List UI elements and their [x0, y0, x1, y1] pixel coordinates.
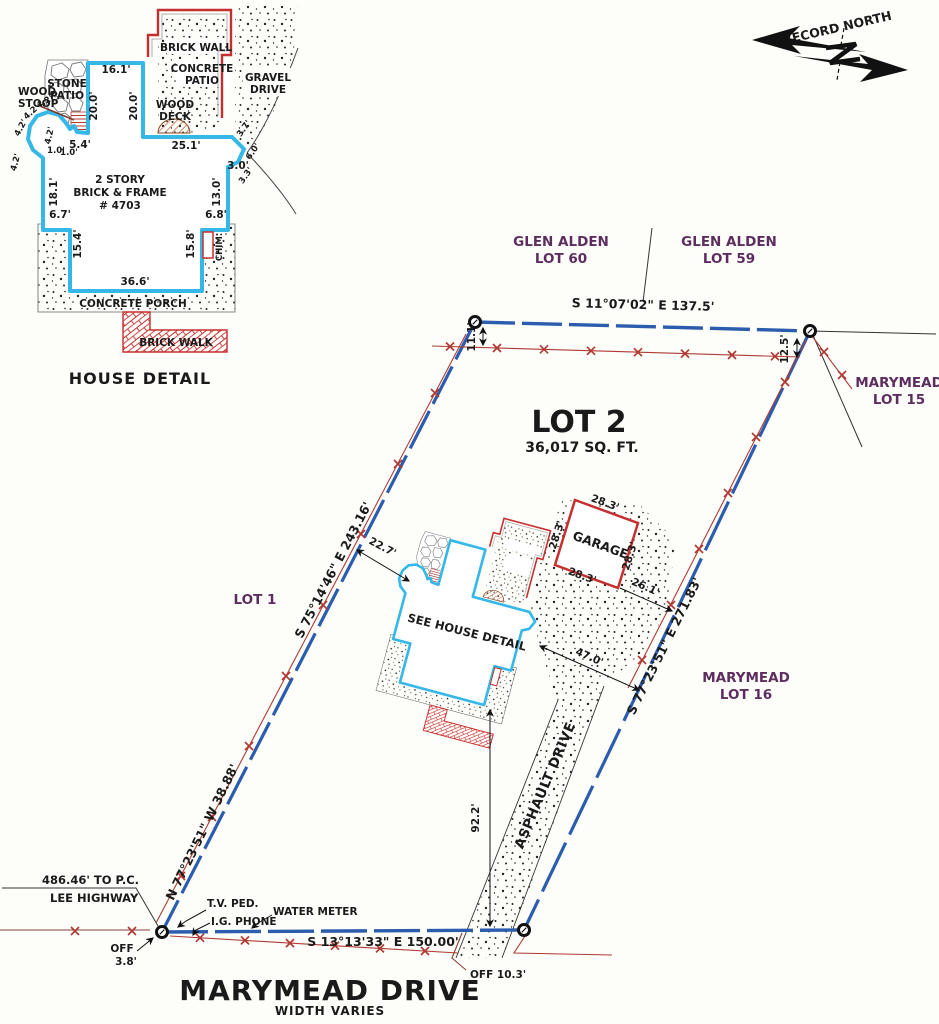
off-3-8-word: OFF	[110, 943, 133, 955]
fence-northeast-diagonal	[812, 336, 852, 389]
dim-12-5: 12.5'	[779, 334, 791, 363]
dim-20-0-left: 20.0'	[88, 91, 100, 120]
wood-deck-label-1: WOOD	[156, 99, 194, 111]
to-pc-label: 486.46' TO P.C.	[42, 873, 139, 887]
brick-walk-label: BRICK WALK	[139, 337, 213, 349]
off-3-8-value: 3.8'	[115, 956, 137, 968]
survey-plat-sheet: BRICK WALL CONCRETE PATIO GRAVEL DRIVE S…	[0, 0, 939, 1024]
boundary-north	[475, 322, 810, 331]
glen-alden-60-number: LOT 60	[535, 251, 587, 267]
monument-southeast	[519, 925, 530, 936]
house-story-label: 2 STORY	[95, 174, 145, 186]
house-number-label: # 4703	[99, 200, 141, 212]
fence-north	[432, 346, 800, 357]
lee-highway-label: LEE HIGHWAY	[50, 891, 139, 905]
chimney-label: CHIM.	[215, 233, 225, 261]
marymead-15-number: LOT 15	[873, 392, 925, 408]
marymead-15-label: MARYMEAD	[855, 375, 939, 391]
plat-drawing: BRICK WALL CONCRETE PATIO GRAVEL DRIVE S…	[0, 0, 939, 1024]
dim-15-4: 15.4'	[72, 229, 84, 258]
dim-92-2: 92.2'	[470, 803, 482, 832]
bearing-west-2: N 77°23'51" W 38.88'	[162, 762, 241, 903]
street-width-note: WIDTH VARIES	[275, 1004, 385, 1018]
dim-25-1: 25.1'	[171, 140, 200, 152]
fence-southeast	[514, 936, 612, 955]
north-arrow: RECORD NORTH	[752, 8, 908, 82]
lot-2-title: LOT 2	[531, 405, 626, 440]
fence-east	[628, 340, 806, 688]
dim-6-7: 6.7'	[49, 209, 71, 221]
house-detail-section: BRICK WALL CONCRETE PATIO GRAVEL DRIVE S…	[9, 6, 298, 388]
glen-alden-60-label: GLEN ALDEN	[513, 234, 609, 250]
bearing-north: S 11°07'02" E 137.5'	[572, 295, 715, 314]
water-meter-label: WATER METER	[273, 906, 358, 918]
driveway-curve-2	[247, 153, 296, 214]
concrete-patio-label-1: CONCRETE	[171, 63, 234, 75]
dim-4-2-e: 4.2'	[9, 153, 23, 173]
line-north-extension	[810, 331, 936, 334]
ig-phone-label: I.G. PHONE	[211, 916, 277, 928]
house-construction-label: BRICK & FRAME	[73, 187, 166, 199]
north-arrow-tick-bottom	[837, 62, 840, 80]
monument-northeast	[805, 326, 816, 337]
dim-20-0-right: 20.0'	[128, 91, 140, 120]
house-detail-title: HOUSE DETAIL	[69, 369, 211, 388]
street-labels: MARYMEAD DRIVE WIDTH VARIES	[179, 974, 481, 1018]
bearing-west: S 75°14'46" E 243.16'	[291, 499, 374, 640]
brick-wall-label: BRICK WALL	[160, 42, 232, 54]
street-name: MARYMEAD DRIVE	[179, 974, 481, 1007]
bearing-south: S 13°13'33" E 150.00'	[307, 934, 458, 949]
monument-southwest	[157, 927, 168, 938]
dim-6-8: 6.8'	[205, 209, 227, 221]
dim-line-22-7	[357, 550, 409, 581]
marymead-16-number: LOT 16	[720, 687, 772, 703]
concrete-patio-label-2: PATIO	[185, 75, 219, 87]
boundary-south	[162, 930, 524, 932]
dim-22-7: 22.7'	[367, 535, 398, 559]
lot-2-area: 36,017 SQ. FT.	[525, 440, 638, 456]
glen-alden-59-label: GLEN ALDEN	[681, 234, 777, 250]
north-arrow-z-glyph	[826, 44, 860, 63]
dim-1-0-b: 1.0'	[60, 148, 78, 158]
off-3-8-leader	[137, 938, 153, 951]
lot-1-label: LOT 1	[234, 592, 277, 608]
glen-alden-59-number: LOT 59	[703, 251, 755, 267]
dim-36-6: 36.6'	[120, 276, 149, 288]
dim-16-1: 16.1'	[101, 64, 130, 76]
wood-deck-label-2: DECK	[159, 111, 192, 123]
tv-ped-leader	[178, 910, 206, 927]
gravel-drive-label-1: GRAVEL	[245, 72, 291, 84]
dim-18-1: 18.1'	[48, 177, 60, 206]
tv-ped-label: T.V. PED.	[207, 898, 259, 910]
dim-15-8: 15.8'	[185, 229, 197, 258]
gravel-drive-label-2: DRIVE	[250, 84, 286, 96]
concrete-porch-label: CONCRETE PORCH	[79, 298, 187, 310]
marymead-16-label: MARYMEAD	[702, 670, 790, 686]
dim-11-1: 11.1'	[466, 322, 478, 351]
line-glen-alden-division	[643, 228, 652, 302]
dim-13-0: 13.0'	[211, 177, 223, 206]
